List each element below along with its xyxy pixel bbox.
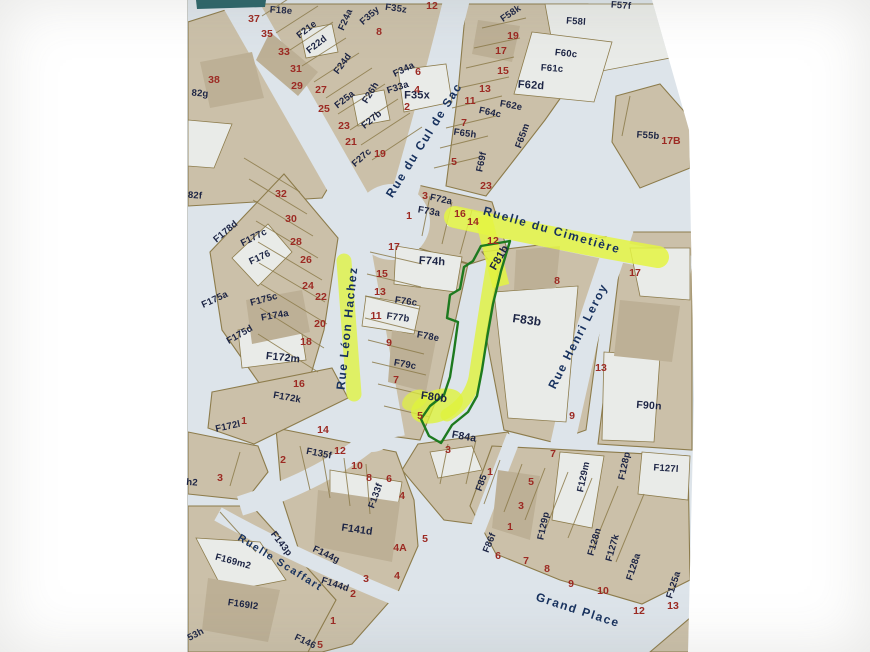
street-junction (354, 184, 430, 260)
cadastral-map-canvas (0, 0, 870, 652)
leon-hachez-highlight (344, 261, 354, 394)
map-photo: Rue du Cul de SacRuelle du CimetièreRue … (0, 0, 870, 652)
street-junction-lower (348, 404, 396, 452)
cadastral-map-screenshot: Rue du Cul de SacRuelle du CimetièreRue … (0, 0, 870, 652)
